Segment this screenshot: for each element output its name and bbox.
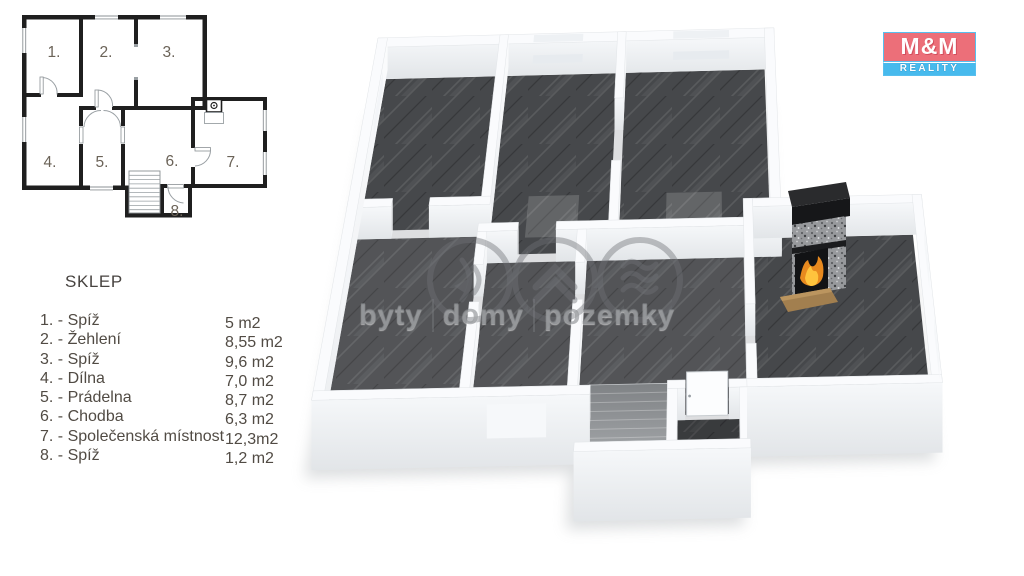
room-label-2: 2. bbox=[100, 44, 113, 61]
floor-plan-2d: 1. 2. 3. 4. 5. 6. 7. 8. bbox=[0, 0, 1024, 576]
legend-area-6: 6,3 m2 bbox=[225, 410, 283, 429]
legend-area-1: 5 m2 bbox=[225, 314, 283, 333]
legend-room-2: 2. - Žehlení bbox=[40, 330, 224, 349]
legend-room-7: 7. - Společenská místnost bbox=[40, 427, 224, 446]
logo-reality: REALITY bbox=[883, 62, 976, 76]
room-label-4: 4. bbox=[44, 154, 57, 171]
legend-room-6: 6. - Chodba bbox=[40, 407, 224, 426]
legend-area-3: 9,6 m2 bbox=[225, 353, 283, 372]
floorplan-page: byty domy pozemky 1. 2. 3. 4. 5. 6. 7. 8… bbox=[0, 0, 1024, 576]
legend-room-3: 3. - Spíž bbox=[40, 350, 224, 369]
room-label-5: 5. bbox=[96, 154, 109, 171]
legend-title: SKLEP bbox=[65, 272, 123, 292]
room-label-8: 8. bbox=[171, 203, 184, 220]
logo-mm: M&M bbox=[883, 32, 976, 62]
legend-room-5: 5. - Prádelna bbox=[40, 388, 224, 407]
legend-area-7: 12,3m2 bbox=[225, 430, 283, 449]
legend-room-areas: 5 m2 8,55 m2 9,6 m2 7,0 m2 8,7 m2 6,3 m2… bbox=[225, 314, 283, 468]
room-label-6: 6. bbox=[166, 153, 179, 170]
mm-reality-logo: M&M REALITY bbox=[883, 32, 976, 76]
room-label-3: 3. bbox=[163, 44, 176, 61]
room-label-7: 7. bbox=[227, 154, 240, 171]
legend-room-8: 8. - Spíž bbox=[40, 446, 224, 465]
room-label-1: 1. bbox=[48, 44, 61, 61]
legend-area-4: 7,0 m2 bbox=[225, 372, 283, 391]
legend-area-2: 8,55 m2 bbox=[225, 333, 283, 352]
legend-room-4: 4. - Dílna bbox=[40, 369, 224, 388]
legend-room-1: 1. - Spíž bbox=[40, 311, 224, 330]
legend-area-5: 8,7 m2 bbox=[225, 391, 283, 410]
legend-area-8: 1,2 m2 bbox=[225, 449, 283, 468]
legend-room-names: 1. - Spíž 2. - Žehlení 3. - Spíž 4. - Dí… bbox=[40, 311, 224, 465]
